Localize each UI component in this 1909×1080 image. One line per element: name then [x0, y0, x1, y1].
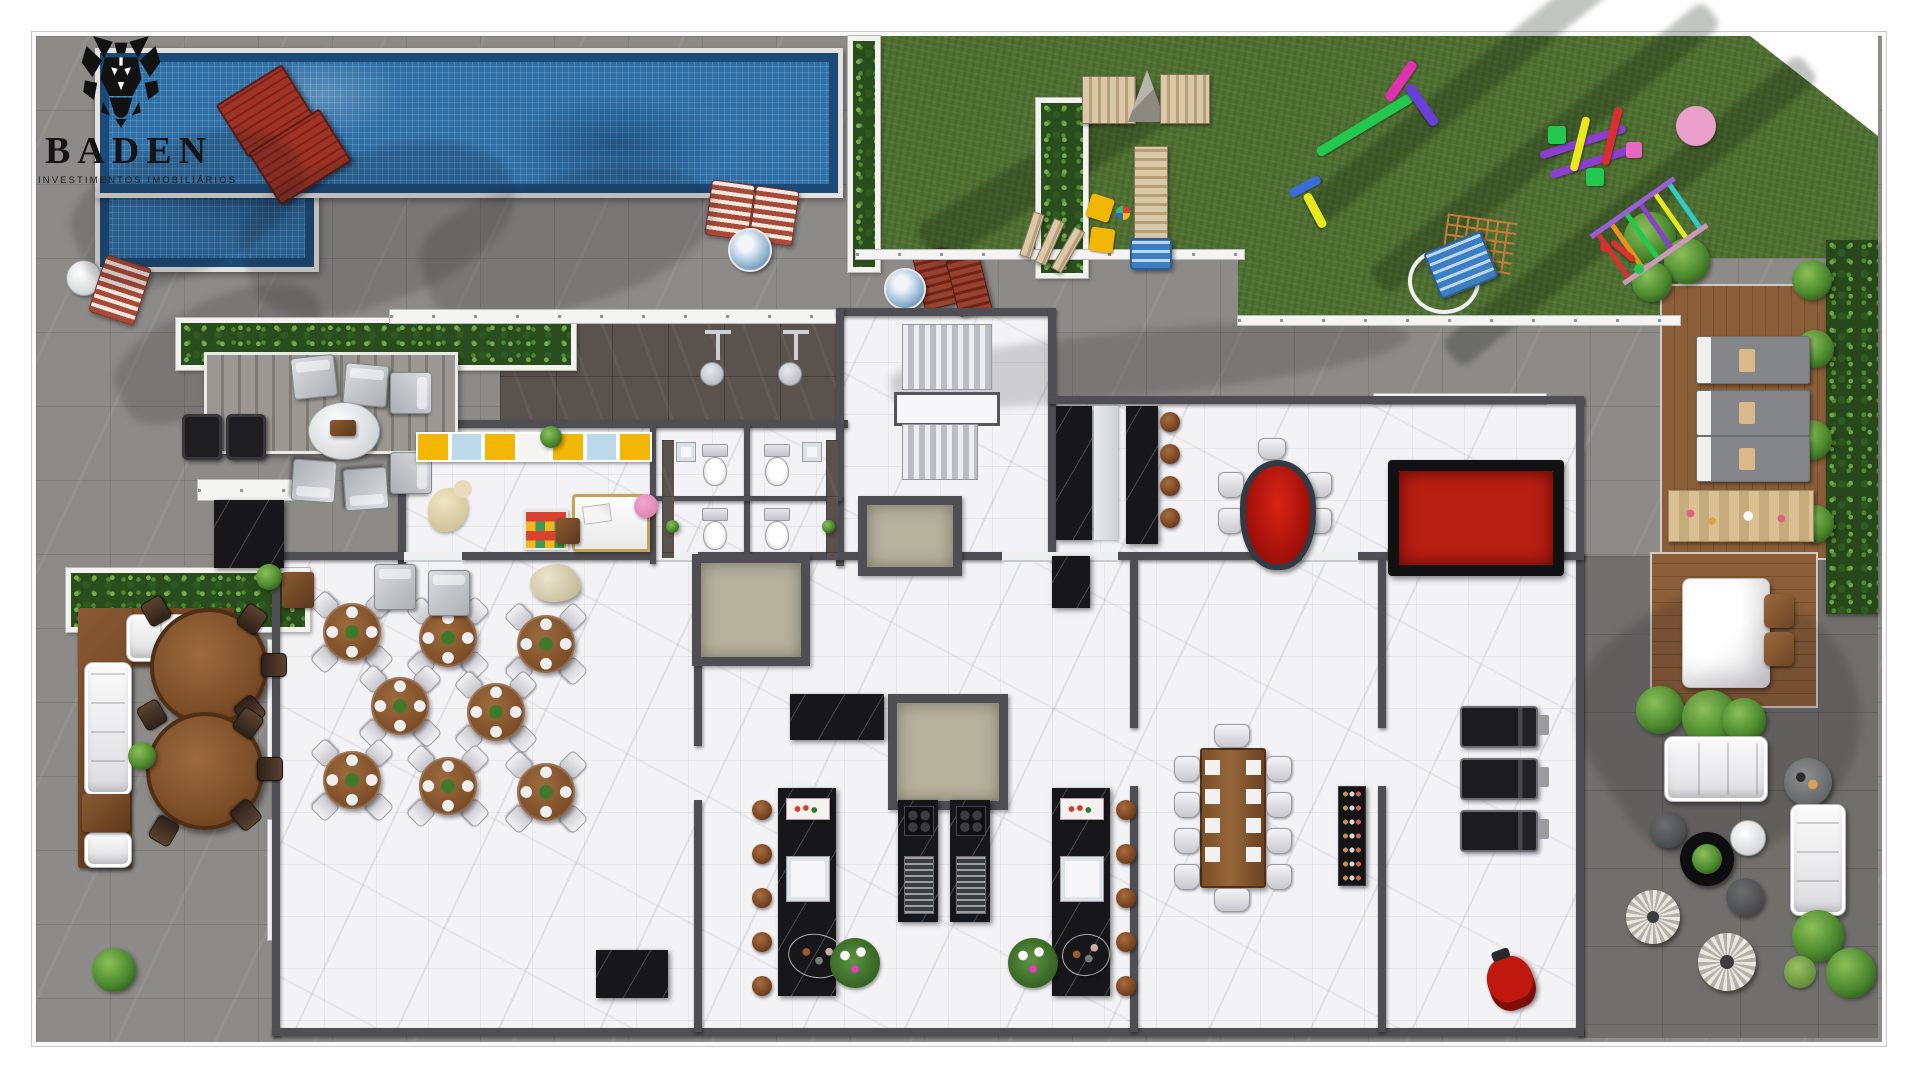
wall: [1048, 396, 1584, 404]
island-sink: [786, 856, 830, 902]
spring-toy-knob: [1600, 242, 1610, 252]
potted-plant: [256, 564, 282, 590]
table-tray: [330, 420, 356, 436]
brand-tagline: INVESTIMENTOS IMOBILIÁRIOS: [38, 175, 204, 186]
table-top: [419, 609, 477, 667]
sauna-lounger: [1696, 336, 1810, 384]
tray-side-table: [282, 572, 314, 608]
cooktop: [904, 806, 934, 836]
wall: [836, 308, 1054, 316]
daybed-pillow: [1764, 632, 1794, 666]
bathroom-dark-strip: [662, 440, 674, 558]
armchair-white: [291, 459, 338, 504]
climbing-ramp: [1134, 146, 1168, 240]
outdoor-sofa: [84, 832, 132, 868]
chair: [1174, 828, 1200, 854]
serving-counter: [790, 694, 884, 740]
hedge-right-edge: [1826, 240, 1878, 614]
table-top: [467, 683, 525, 741]
lawn-curb: [1238, 316, 1680, 325]
armchair-black: [182, 414, 222, 460]
play-deck-ramp: [1160, 74, 1210, 124]
billiards-table: [1388, 460, 1564, 576]
pouf-dark: [1726, 878, 1764, 916]
cubby-yellow: [418, 434, 448, 460]
kids-cubby-lockers: [416, 432, 652, 462]
stool: [752, 844, 772, 864]
bowl-plant: [1692, 844, 1722, 874]
wine-rack: [1338, 786, 1366, 886]
stool: [1116, 844, 1136, 864]
chair: [1174, 864, 1200, 890]
dining-chairs-right: [1266, 756, 1292, 890]
bathroom-sink: [802, 442, 822, 462]
play-deck-ramp: [1082, 76, 1136, 124]
spring-toy-knob: [1634, 264, 1644, 274]
table-top: [419, 757, 477, 815]
potted-plant: [822, 520, 835, 533]
planter-row: [848, 36, 880, 272]
refreshment-counter: [1668, 490, 1814, 542]
chair: [1266, 756, 1292, 782]
outdoor-sofa: [1664, 736, 1768, 802]
wall: [1576, 396, 1584, 1036]
table-top: [371, 677, 429, 735]
cutting-board: [786, 798, 830, 820]
potted-plant: [92, 948, 136, 992]
armchair-white: [290, 354, 338, 400]
indoor-grill: [904, 856, 934, 914]
table-top: [517, 763, 575, 821]
party-dining-table: [314, 742, 390, 818]
decor-sculpture: [530, 564, 580, 602]
pool-deck-balustrade: [390, 310, 842, 323]
poker-table-red: [1240, 460, 1316, 570]
shrub: [1792, 260, 1832, 300]
potted-plant: [1636, 686, 1684, 734]
cubby-yellow: [620, 434, 650, 460]
kids-chair: [556, 518, 580, 544]
dining-chairs-left: [1174, 756, 1200, 890]
wall: [272, 552, 404, 560]
bathroom-dark-strip: [826, 440, 838, 558]
brand-logo: BADEN INVESTIMENTOS IMOBILIÁRIOS: [38, 36, 204, 186]
cubby-yellow: [485, 434, 515, 460]
mosaic-side-table: [884, 268, 926, 310]
lounge-chair-gray: [374, 564, 416, 610]
wall: [656, 496, 842, 501]
stool: [752, 888, 772, 908]
elevator-shaft: [858, 496, 962, 576]
long-dining-table: [1200, 748, 1266, 888]
wall: [1130, 560, 1138, 728]
play-circle-pink: [1676, 106, 1716, 146]
play-seat-yellow: [1088, 226, 1115, 253]
chair: [1266, 828, 1292, 854]
coffee-table-round: [1784, 758, 1832, 806]
armchair-black: [226, 414, 266, 460]
potted-plant: [540, 426, 562, 448]
indoor-grill: [956, 856, 986, 914]
daybed-pillow: [1764, 594, 1794, 628]
armchair-white: [343, 467, 390, 512]
lion-emblem-icon: [80, 36, 162, 128]
potted-plant: [666, 520, 679, 533]
stair-flight-lower: [902, 424, 978, 480]
play-box-blue: [1130, 238, 1172, 270]
grill-vent: [198, 480, 294, 500]
chair: [1174, 792, 1200, 818]
green-pouf: [1784, 956, 1816, 988]
wall: [398, 420, 848, 428]
wall: [1378, 786, 1386, 1032]
bar-stool: [1160, 508, 1180, 528]
bar-stools: [1160, 412, 1180, 528]
chair: [1266, 864, 1292, 890]
toilet: [700, 444, 728, 488]
party-dining-table: [410, 748, 486, 824]
mosaic-side-table: [728, 228, 772, 272]
stool: [752, 800, 772, 820]
wicker-pouf: [1626, 890, 1680, 944]
chair-dark: [261, 653, 287, 677]
seesaw-seat-green: [1548, 126, 1566, 144]
side-table-white: [1730, 820, 1766, 856]
sauna-lounger: [1696, 390, 1810, 436]
side-table-wood: [82, 794, 130, 832]
bathroom-sink: [676, 442, 696, 462]
chair: [1266, 792, 1292, 818]
island-sink: [1060, 856, 1104, 902]
chair-dark: [257, 757, 283, 781]
party-dining-table: [362, 668, 438, 744]
stool: [752, 976, 772, 996]
bar-back-counter: [1056, 406, 1092, 540]
daybed: [1682, 578, 1770, 688]
lounge-chair-gray: [428, 570, 470, 616]
table-top: [517, 615, 575, 673]
cubby-blue: [587, 434, 617, 460]
party-dining-table: [508, 606, 584, 682]
cooktop: [956, 806, 986, 836]
seesaw-seat-pink: [1626, 142, 1642, 158]
bar-service-strip: [1094, 406, 1118, 540]
sauna-lounger: [1696, 436, 1810, 482]
bar-counter: [1126, 406, 1158, 544]
outdoor-shower: [698, 330, 738, 386]
door-opening: [404, 552, 462, 562]
floor-plan-render: BADEN INVESTIMENTOS IMOBILIÁRIOS: [0, 0, 1909, 1080]
seesaw-seat-green: [1586, 168, 1604, 186]
poker-chair: [1258, 438, 1286, 460]
wall: [272, 552, 280, 1036]
party-dining-table: [508, 754, 584, 830]
poker-chair: [1218, 472, 1244, 498]
table-top: [323, 603, 381, 661]
wall: [1048, 308, 1056, 560]
bbq-grill-station: [214, 500, 284, 568]
toilet: [762, 508, 790, 552]
cutting-board: [1060, 798, 1104, 820]
stool: [1116, 932, 1136, 952]
armchair-white: [390, 372, 432, 414]
potted-plant: [1826, 948, 1876, 998]
bar-stool: [1160, 412, 1180, 432]
potted-plant: [128, 742, 156, 770]
wall: [744, 424, 750, 564]
serving-counter: [1052, 556, 1090, 608]
pouf-dark: [1650, 812, 1686, 848]
bar-stool: [1160, 476, 1180, 496]
treadmill: [1460, 758, 1538, 800]
play-ball: [1116, 206, 1130, 220]
wicker-pouf: [1698, 933, 1756, 991]
stool: [1116, 888, 1136, 908]
wall: [1378, 560, 1386, 728]
cubby-blue: [452, 434, 482, 460]
armchair-white: [342, 362, 389, 408]
stool: [752, 932, 772, 952]
outdoor-shower: [776, 330, 816, 386]
wall: [272, 1028, 1584, 1036]
island-stools: [1116, 800, 1136, 996]
outdoor-sofa: [1790, 804, 1846, 916]
brand-name: BADEN: [38, 132, 204, 170]
stair-flight-upper: [902, 324, 992, 390]
outdoor-sofa: [84, 662, 132, 796]
toilet: [762, 444, 790, 488]
table-top: [323, 751, 381, 809]
stair-landing: [894, 392, 1000, 426]
stool: [1116, 800, 1136, 820]
wall: [462, 552, 654, 560]
head-chair: [1214, 724, 1250, 748]
treadmill: [1460, 810, 1538, 852]
party-dining-table: [458, 674, 534, 750]
light-shaft: [692, 554, 810, 666]
island-stools: [752, 800, 772, 996]
door-opening: [1302, 552, 1358, 562]
pink-pouf: [634, 494, 658, 518]
chair: [1174, 756, 1200, 782]
sideboard-cabinet: [596, 950, 668, 998]
bar-stool: [1160, 444, 1180, 464]
toilet: [700, 508, 728, 552]
treadmill: [1460, 706, 1538, 748]
head-chair: [1214, 888, 1250, 912]
flower-arrangement: [1008, 938, 1058, 988]
stool: [1116, 976, 1136, 996]
wall: [694, 800, 702, 1032]
flower-arrangement: [830, 938, 880, 988]
light-shaft: [888, 694, 1008, 810]
